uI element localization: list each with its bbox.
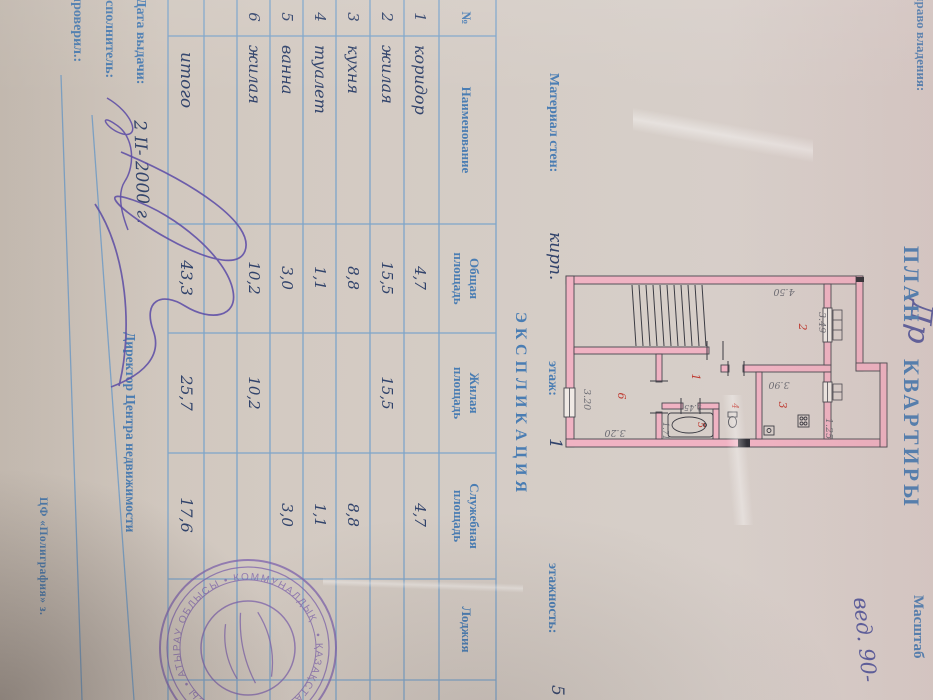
plan-doors: [650, 341, 744, 414]
print-shop-mark: ЦФ «Полиграфия» з.: [37, 497, 49, 615]
plan-stairs: [632, 285, 706, 346]
checked-label: проверил.:: [69, 0, 85, 62]
plan-dimensions: 4.50 3.49 3.90 1.25 3.20 3.20 1.45 1.71: [581, 286, 834, 440]
material-value: кирп.: [545, 232, 565, 280]
document-page: право владения: Др ПЛАН КВАРТИРЫ Масштаб…: [0, 0, 933, 700]
floor-plan: 1 2 3 4 5 6 4.50 3.49 3.90 1.25 3.20 3.2…: [546, 235, 906, 465]
table-row: 1коридор 4,7 4,7: [404, 0, 436, 700]
col-service: Служебнаяплощадь: [439, 453, 493, 579]
floors-label: этажность:: [544, 563, 560, 633]
photo-viewport: право владения: Др ПЛАН КВАРТИРЫ Масштаб…: [0, 0, 933, 700]
dim-145: 1.45: [684, 403, 702, 412]
plan-room-numbers: 1 2 3 4 5 6: [615, 323, 809, 429]
col-loggia: Лоджия: [439, 579, 493, 680]
ownership-label: право владения:: [913, 0, 929, 91]
plan-fixtures: [668, 412, 809, 437]
col-living: Жилаяплощадь: [439, 333, 493, 453]
explication-title: ЭКСПЛИКАЦИЯ: [511, 312, 529, 497]
plan-balcony-door: [856, 277, 864, 282]
date-value-handwriting: 2 II- 2000 г.: [129, 120, 153, 224]
signature-executor: [105, 98, 132, 230]
col-name: Наименование: [439, 36, 493, 224]
table-row: 5ванна 3,0 3,0: [271, 0, 303, 700]
floors-value: 5: [547, 685, 567, 696]
table-total-row: итого 43,3 25,7 17,6: [170, 0, 202, 700]
executor-label: исполнитель:: [101, 0, 117, 78]
room-6: 6: [615, 393, 628, 400]
room-4: 4: [729, 402, 739, 409]
date-label: Дата выдачи:: [132, 0, 148, 84]
table-row: 4туалет 1,1 1,1: [304, 0, 336, 700]
room-5: 5: [695, 422, 706, 428]
material-label: Материал стен:: [545, 73, 561, 172]
dim-390: 3.90: [768, 379, 789, 390]
table-row: 2жилая 15,515,5: [371, 0, 403, 700]
scale-label: Масштаб: [909, 595, 926, 659]
plan-vent: [738, 439, 750, 447]
paper-crease: [573, 395, 903, 525]
dim-320b: 3.20: [604, 427, 625, 438]
dim-349: 3.49: [816, 312, 827, 333]
plan-title: ПЛАН КВАРТИРЫ: [898, 246, 924, 509]
room-1: 1: [689, 374, 702, 381]
dim-171: 1.71: [661, 422, 670, 440]
floor-label: этаж:: [544, 361, 560, 396]
dim-320a: 3.20: [581, 389, 592, 410]
director-line: Директор Центра недвижимости: [122, 332, 138, 532]
room-2: 2: [796, 323, 809, 331]
scale-note-handwriting: вед. 90-: [849, 596, 882, 683]
floor-value: 1: [545, 438, 565, 449]
col-num: №: [439, 0, 493, 36]
room-3: 3: [776, 402, 789, 409]
dim-125: 1.25: [823, 418, 834, 439]
dim-450: 4.50: [773, 286, 795, 297]
col-total: Общаяплощадь: [439, 224, 493, 333]
table-row: 3кухня 8,8 8,8: [337, 0, 369, 700]
plan-windows: [564, 308, 832, 417]
table-row: 6жилая 10,210,2: [238, 0, 270, 700]
paper-crease: [633, 0, 813, 270]
